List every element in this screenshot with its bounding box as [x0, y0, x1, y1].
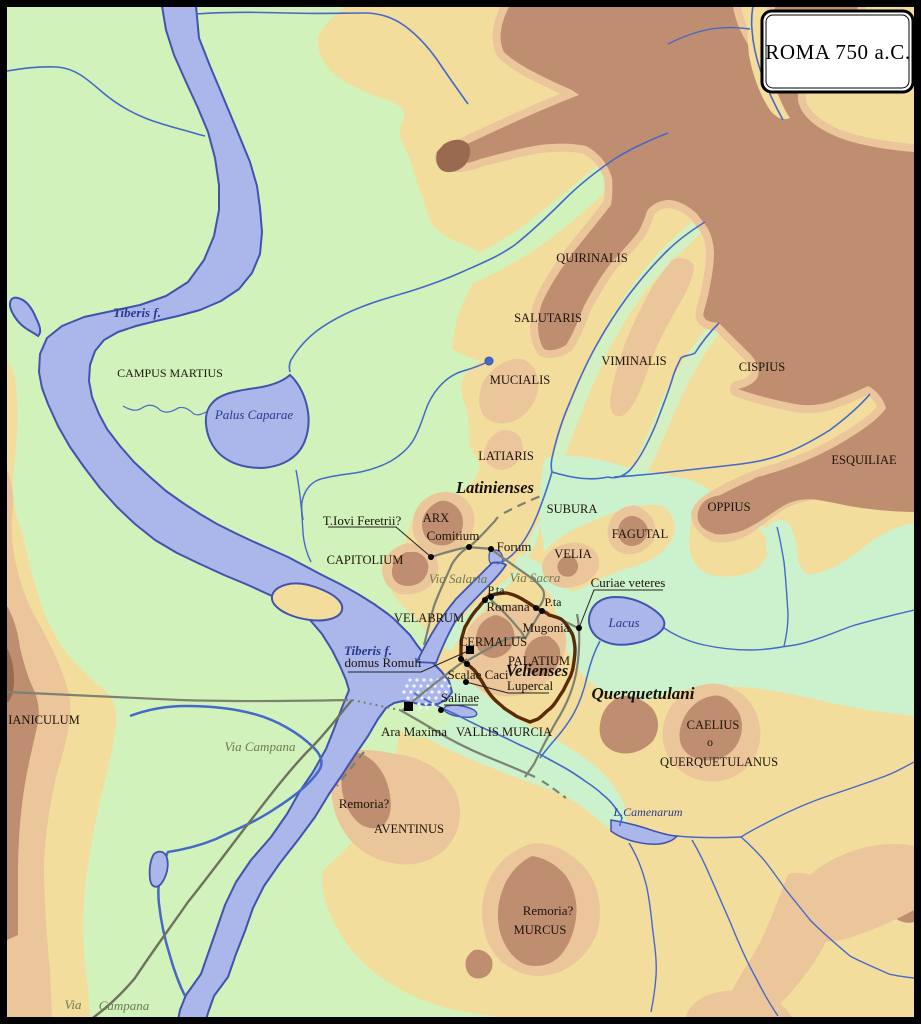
svg-text:CAELIUS: CAELIUS — [687, 718, 740, 732]
svg-text:Via Sacra: Via Sacra — [510, 570, 561, 585]
svg-text:Curiae veteres: Curiae veteres — [591, 575, 666, 590]
svg-text:Forum: Forum — [497, 539, 532, 554]
svg-text:Remoria?: Remoria? — [523, 903, 574, 918]
svg-text:Ara Maxima: Ara Maxima — [381, 724, 447, 739]
svg-text:ARX: ARX — [423, 511, 449, 525]
svg-text:domus Romuli: domus Romuli — [345, 655, 422, 670]
svg-text:LATIARIS: LATIARIS — [478, 449, 534, 463]
svg-text:P.ta: P.ta — [544, 595, 562, 609]
svg-text:VELABRUM: VELABRUM — [394, 611, 464, 625]
svg-text:Campana: Campana — [99, 998, 150, 1013]
svg-text:Scalae Caci: Scalae Caci — [448, 667, 509, 682]
svg-text:QUERQUETULANUS: QUERQUETULANUS — [660, 755, 778, 769]
svg-text:SALUTARIS: SALUTARIS — [514, 311, 582, 325]
svg-text:Lacus: Lacus — [607, 615, 639, 630]
svg-text:Latinienses: Latinienses — [455, 478, 534, 497]
svg-text:VIMINALIS: VIMINALIS — [601, 354, 666, 368]
svg-text:Querquetulani: Querquetulani — [592, 684, 695, 703]
svg-text:Mugonia: Mugonia — [523, 620, 570, 635]
svg-text:FAGUTAL: FAGUTAL — [612, 527, 668, 541]
svg-text:Tiberis f.: Tiberis f. — [113, 305, 161, 320]
svg-text:Romana: Romana — [486, 599, 530, 614]
svg-text:CERMALUS: CERMALUS — [459, 635, 527, 649]
svg-text:CISPIUS: CISPIUS — [739, 360, 786, 374]
svg-text:Comitium: Comitium — [427, 528, 480, 543]
svg-text:Lupercal: Lupercal — [507, 678, 554, 693]
svg-text:Remoria?: Remoria? — [339, 796, 390, 811]
svg-text:ESQUILIAE: ESQUILIAE — [831, 453, 897, 467]
svg-text:AVENTINUS: AVENTINUS — [374, 822, 444, 836]
svg-text:VELIA: VELIA — [554, 547, 592, 561]
svg-text:ROMA 750 a.C.: ROMA 750 a.C. — [765, 40, 910, 64]
svg-text:MUCIALIS: MUCIALIS — [490, 373, 550, 387]
svg-text:MURCUS: MURCUS — [514, 923, 567, 937]
svg-text:QUIRINALIS: QUIRINALIS — [556, 251, 628, 265]
svg-text:SUBURA: SUBURA — [547, 502, 598, 516]
svg-text:VALLIS MURCIA: VALLIS MURCIA — [456, 725, 552, 739]
svg-text:o: o — [707, 735, 713, 749]
svg-text:Via Campana: Via Campana — [225, 739, 296, 754]
svg-text:Via: Via — [64, 997, 82, 1012]
svg-text:T.Iovi Feretrii?: T.Iovi Feretrii? — [323, 513, 402, 528]
svg-text:CAMPUS MARTIUS: CAMPUS MARTIUS — [117, 366, 223, 380]
svg-text:OPPIUS: OPPIUS — [707, 500, 750, 514]
svg-text:Salinae: Salinae — [441, 690, 479, 705]
svg-text:IANICULUM: IANICULUM — [8, 713, 80, 727]
svg-text:Palus Caparae: Palus Caparae — [214, 407, 294, 422]
svg-text:P.ta: P.ta — [487, 583, 505, 597]
svg-text:L.Camenarum: L.Camenarum — [612, 805, 682, 819]
svg-text:Via Salaria: Via Salaria — [429, 571, 488, 586]
svg-text:PALATIUM: PALATIUM — [508, 654, 570, 668]
svg-text:CAPITOLIUM: CAPITOLIUM — [327, 553, 404, 567]
